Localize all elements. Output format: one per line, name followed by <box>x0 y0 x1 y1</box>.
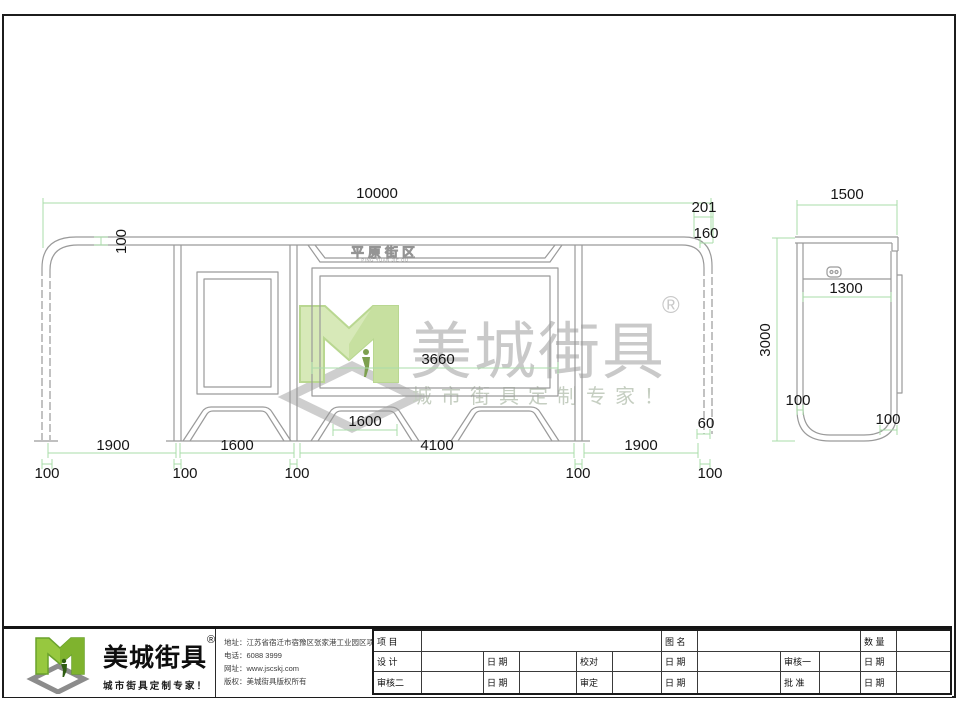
web-value: www.jscskj.com <box>247 664 300 673</box>
label-date-6: 日 期 <box>861 672 897 693</box>
value-date-5 <box>698 672 781 693</box>
dim-total-width: 10000 <box>356 185 398 202</box>
dim-bay-left: 1900 <box>96 437 129 454</box>
label-approve: 批 准 <box>781 672 820 693</box>
label-date-5: 日 期 <box>662 672 698 693</box>
dim-side-post: 100 <box>785 392 810 409</box>
contact-copyright: 版权：美城街具版权所有 <box>224 675 370 688</box>
dim-post-4: 100 <box>565 465 590 482</box>
company-m-logo-icon <box>20 632 100 694</box>
dim-side-width: 1500 <box>830 186 863 203</box>
dim-post-5: 100 <box>697 465 722 482</box>
label-date-3: 日 期 <box>861 652 897 672</box>
shelter-sign-subtitle: PING YUAN JIE QU <box>361 258 408 263</box>
value-approve-check <box>613 672 662 693</box>
label-proofread: 校对 <box>577 652 613 672</box>
company-slogan: 城市街具定制专家！ <box>103 678 215 692</box>
label-project: 项 目 <box>374 631 422 652</box>
phone-value: 6088 3999 <box>247 651 282 660</box>
title-block-divider <box>215 629 216 697</box>
contact-phone: 电话：6088 3999 <box>224 649 370 662</box>
dim-ad-width: 3660 <box>421 351 454 368</box>
dim-roof-edge: 160 <box>693 225 718 242</box>
value-approve <box>820 672 861 693</box>
technical-drawing: 美城街具 ® 城市街具定制专家！ <box>0 0 960 704</box>
dim-post-1: 100 <box>34 465 59 482</box>
dim-bay-center: 4100 <box>420 437 453 454</box>
dim-bay-right: 1900 <box>624 437 657 454</box>
drawing-info-table: 项 目 图 名 数 量 设 计 日 期 校对 日 期 审核一 日 期 审核二 日… <box>372 629 952 695</box>
dim-side-base: 100 <box>875 411 900 428</box>
dim-bay-panel: 1600 <box>220 437 253 454</box>
bench-1 <box>183 407 291 441</box>
dim-right-overhang: 201 <box>691 199 716 216</box>
value-date-4 <box>520 672 577 693</box>
dim-side-height: 3000 <box>757 323 774 356</box>
value-date-6 <box>897 672 950 693</box>
value-review2 <box>422 672 484 693</box>
label-date-1: 日 期 <box>484 652 520 672</box>
label-drawing-name: 图 名 <box>662 631 698 652</box>
label-review1: 审核一 <box>781 652 820 672</box>
label-date-2: 日 期 <box>662 652 698 672</box>
value-drawing-name <box>698 631 861 652</box>
registered-mark: ® <box>207 634 215 646</box>
value-quantity <box>897 631 950 652</box>
dim-bench-width: 1600 <box>348 413 381 430</box>
copyright-value: 美城街具版权所有 <box>247 677 307 686</box>
title-block: 美城街具® 城市街具定制专家！ 地址：江苏省宿迁市宿豫区张家港工业园区项王路南侧… <box>4 626 952 697</box>
value-date-1 <box>520 652 577 672</box>
vent-icon <box>827 267 841 277</box>
watermark-registered-mark: ® <box>662 292 680 319</box>
label-approve-check: 审定 <box>577 672 613 693</box>
value-date-2 <box>698 652 781 672</box>
value-review1 <box>820 652 861 672</box>
lightbox-panel <box>197 272 278 394</box>
phone-label: 电话： <box>224 651 247 660</box>
watermark-person-icon <box>363 349 369 355</box>
company-logo-area: 美城街具® 城市街具定制专家！ <box>4 629 215 697</box>
address-label: 地址： <box>224 638 247 647</box>
value-project <box>422 631 662 652</box>
label-review2: 审核二 <box>374 672 422 693</box>
web-label: 网址： <box>224 664 247 673</box>
dim-right-leg: 60 <box>698 415 715 432</box>
label-quantity: 数 量 <box>861 631 897 652</box>
dim-post-2: 100 <box>172 465 197 482</box>
value-design <box>422 652 484 672</box>
dim-post-3: 100 <box>284 465 309 482</box>
label-date-4: 日 期 <box>484 672 520 693</box>
bench-3 <box>451 407 559 441</box>
company-brand-name: 美城街具 <box>103 644 207 672</box>
contact-address: 地址：江苏省宿迁市宿豫区张家港工业园区项王路南侧1号 <box>224 636 370 649</box>
copyright-label: 版权： <box>224 677 247 686</box>
contact-web: 网址：www.jscskj.com <box>224 662 370 675</box>
value-proofread <box>613 652 662 672</box>
label-design: 设 计 <box>374 652 422 672</box>
drawing-sheet: 美城街具 ® 城市街具定制专家！ <box>0 0 960 704</box>
dim-roof-thickness: 100 <box>113 229 130 254</box>
dim-side-inner: 1300 <box>829 280 862 297</box>
value-date-3 <box>897 652 950 672</box>
company-contact-info: 地址：江苏省宿迁市宿豫区张家港工业园区项王路南侧1号 电话：6088 3999 … <box>224 636 370 688</box>
